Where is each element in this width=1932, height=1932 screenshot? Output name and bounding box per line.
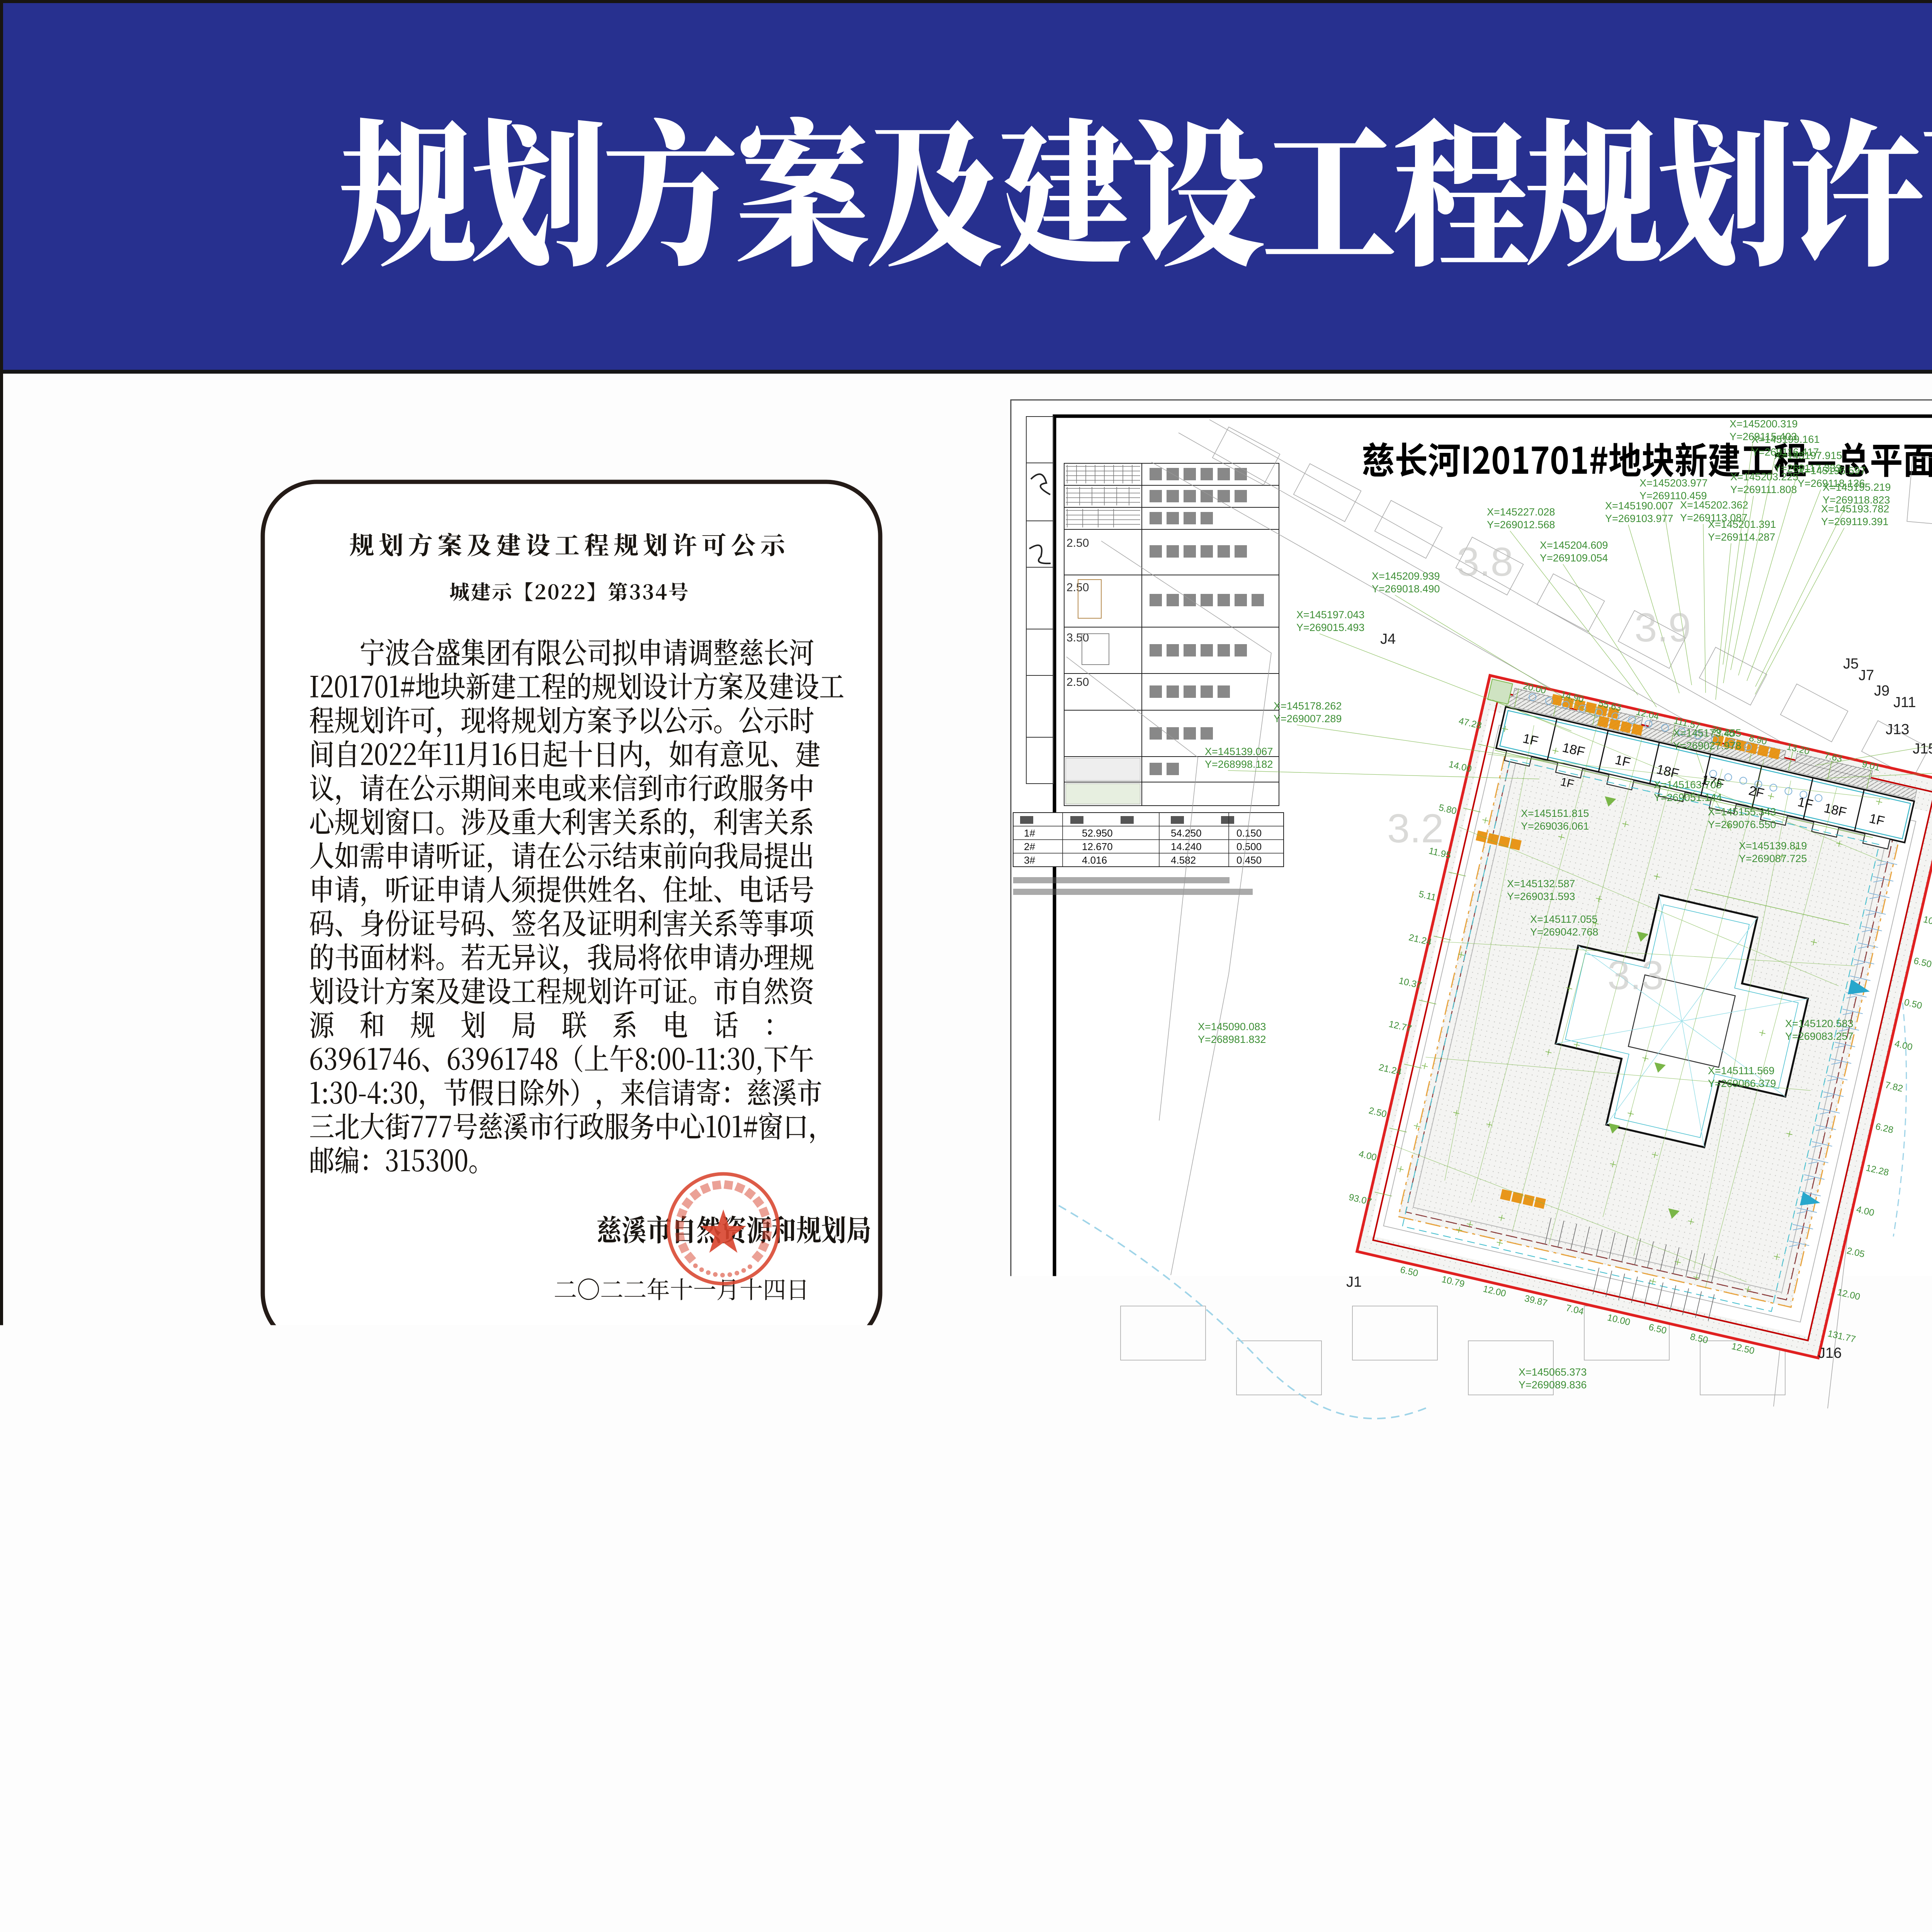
svg-text:1800: 1800 [1294,1548,1312,1556]
svg-text:Y=269089.836: Y=269089.836 [1519,1379,1587,1391]
svg-text:29: 29 [1626,1531,1633,1538]
svg-text:2: 2 [774,1531,778,1538]
svg-text:750: 750 [792,1795,805,1803]
svg-text:590: 590 [1101,1795,1114,1803]
svg-text:X=145151.815: X=145151.815 [1521,808,1589,819]
svg-text:X=145120.583: X=145120.583 [1785,1018,1853,1029]
svg-text:2.50: 2.50 [1066,537,1089,549]
svg-text:10: 10 [1026,1531,1034,1538]
svg-text:2500: 2500 [1024,1795,1041,1803]
svg-text:G-M5: G-M5 [1604,1737,1629,1749]
svg-text:4200: 4200 [1604,1795,1621,1803]
svg-text:1500: 1500 [1217,1548,1235,1556]
svg-text:2#: 2# [1024,841,1035,852]
svg-text:8: 8 [963,1531,967,1538]
svg-text:3: 3 [806,1531,809,1538]
svg-text:X=145173.455: X=145173.455 [1673,727,1741,739]
svg-text:4180: 4180 [1488,1548,1505,1556]
svg-text:3000: 3000 [908,1795,925,1803]
svg-text:3.50: 3.50 [1066,631,1089,644]
svg-text:0.150: 0.150 [1236,827,1262,839]
svg-text:3000: 3000 [1604,1548,1621,1556]
svg-text:15: 15 [1184,1531,1191,1538]
svg-text:1200: 1200 [1526,1795,1544,1803]
svg-text:Y=269066.379: Y=269066.379 [1708,1078,1776,1089]
svg-text:500: 500 [947,1548,959,1556]
svg-text:750: 750 [1719,1795,1732,1803]
svg-text:19: 19 [1310,1531,1318,1538]
svg-text:X=145193.782: X=145193.782 [1821,503,1889,515]
svg-text:1330: 1330 [1372,1795,1389,1803]
svg-text:3.9: 3.9 [1634,605,1691,650]
svg-text:4020: 4020 [1681,1548,1698,1556]
svg-text:25: 25 [1499,1531,1507,1538]
svg-text:16: 16 [1216,1531,1223,1538]
svg-text:54.250: 54.250 [1171,827,1202,839]
svg-text:4020: 4020 [753,1548,771,1556]
svg-text:590: 590 [1642,1548,1655,1556]
svg-text:Y=269076.550: Y=269076.550 [1708,819,1776,830]
svg-text:G-C3: G-C3 [1391,1737,1415,1749]
svg-text:X=145200.319: X=145200.319 [1730,418,1798,430]
svg-text:950: 950 [1526,1548,1539,1556]
svg-text:2700: 2700 [1758,1548,1776,1556]
svg-text:2700: 2700 [947,1795,964,1803]
svg-text:1500: 1500 [831,1795,848,1803]
svg-text:1000: 1000 [1565,1795,1582,1803]
svg-text:Y=269111.808: Y=269111.808 [1730,484,1797,495]
svg-text:J7: J7 [1859,667,1874,684]
svg-text:26: 26 [1531,1531,1538,1538]
svg-text:600: 600 [985,1795,998,1803]
svg-text:Y=269051.144: Y=269051.144 [1654,792,1722,803]
svg-text:G-C2: G-C2 [1484,1616,1508,1627]
svg-text:X=145117.055: X=145117.055 [1530,913,1597,925]
svg-text:0.450: 0.450 [1236,854,1262,866]
svg-text:3900: 3900 [1179,1795,1196,1803]
svg-text:14.240: 14.240 [1171,841,1202,852]
svg-text:30: 30 [1657,1531,1664,1538]
svg-text:X=145196.597: X=145196.597 [1798,465,1866,476]
svg-text:4180: 4180 [1256,1795,1273,1803]
svg-text:J9: J9 [1874,683,1889,699]
svg-text:2700: 2700 [831,1548,848,1556]
svg-text:X=145111.569: X=145111.569 [1708,1065,1774,1077]
svg-text:890: 890 [1565,1548,1578,1556]
svg-text:J13: J13 [1886,721,1909,738]
svg-text:770: 770 [1410,1795,1423,1803]
svg-text:Y=269119.391: Y=269119.391 [1821,516,1888,527]
svg-text:Y=269087.725: Y=269087.725 [1739,853,1807,864]
svg-text:1: 1 [743,1531,746,1538]
svg-text:5: 5 [869,1531,872,1538]
svg-text:Y=269031.593: Y=269031.593 [1507,891,1575,902]
svg-text:890: 890 [1642,1795,1655,1803]
svg-text:3000: 3000 [908,1548,925,1556]
svg-text:600: 600 [1063,1548,1075,1556]
svg-text:Y=269042.768: Y=269042.768 [1530,926,1598,938]
svg-text:4: 4 [837,1531,841,1538]
svg-text:Y=269015.493: Y=269015.493 [1296,622,1364,633]
svg-text:3000: 3000 [1140,1795,1157,1803]
svg-text:2.50: 2.50 [1066,676,1089,689]
svg-text:X=145090.083: X=145090.083 [1198,1021,1266,1032]
svg-text:2700: 2700 [869,1548,887,1556]
svg-text:Y=269109.054: Y=269109.054 [1540,552,1608,564]
svg-text:6: 6 [900,1531,904,1538]
svg-text:1330: 1330 [1140,1548,1157,1556]
svg-text:1#: 1# [1024,827,1035,839]
svg-text:X=145199.161: X=145199.161 [1752,434,1820,445]
svg-text:X=145203.977: X=145203.977 [1639,477,1708,489]
svg-text:4.016: 4.016 [1082,854,1107,866]
svg-text:X=145197.915: X=145197.915 [1774,450,1842,461]
svg-text:32: 32 [1720,1531,1728,1538]
svg-text:0.500: 0.500 [1236,841,1262,852]
svg-text:13: 13 [1121,1531,1128,1538]
svg-text:4.582: 4.582 [1171,854,1196,866]
svg-text:4200: 4200 [1372,1548,1389,1556]
svg-text:23: 23 [1436,1531,1444,1538]
svg-text:750: 750 [1024,1548,1037,1556]
svg-text:3.3: 3.3 [1607,953,1664,998]
svg-text:52.950: 52.950 [1082,827,1113,839]
svg-text:G-M5: G-M5 [1179,1737,1204,1749]
svg-text:21: 21 [1373,1531,1381,1538]
svg-text:G-M2: G-M2 [1275,1616,1300,1627]
svg-text:A233012676: A233012676 [1883,1568,1931,1578]
svg-text:12: 12 [1090,1531,1097,1538]
svg-text:X=145197.043: X=145197.043 [1296,609,1364,621]
svg-text:X=145227.028: X=145227.028 [1487,506,1555,518]
svg-text:18: 18 [1279,1531,1286,1538]
svg-text:Y=269103.977: Y=269103.977 [1605,513,1673,524]
svg-text:X=145204.609: X=145204.609 [1540,539,1608,551]
svg-text:X=145139.067: X=145139.067 [1205,746,1273,757]
svg-text:1000: 1000 [1179,1548,1196,1556]
svg-text:1800: 1800 [1217,1795,1235,1803]
svg-text:Y=269027.978: Y=269027.978 [1673,740,1741,752]
svg-text:3900: 3900 [1101,1548,1119,1556]
svg-text:24: 24 [1468,1531,1475,1538]
svg-text:1500: 1500 [1758,1795,1776,1803]
svg-text:34: 34 [1783,1531,1791,1538]
svg-text:3800: 3800 [1719,1548,1737,1556]
svg-text:1200: 1200 [985,1548,1003,1556]
svg-text:9: 9 [995,1531,998,1538]
svg-text:Y=269007.289: Y=269007.289 [1274,713,1342,724]
svg-text:22: 22 [1405,1531,1412,1538]
svg-text:500: 500 [1333,1795,1346,1803]
svg-text:X=145209.939: X=145209.939 [1372,570,1440,582]
svg-text:20: 20 [1342,1531,1349,1538]
svg-text:2500: 2500 [1256,1548,1273,1556]
svg-text:28: 28 [1594,1531,1601,1538]
svg-text:770: 770 [1333,1548,1346,1556]
svg-text:3800: 3800 [792,1548,810,1556]
svg-text:Y=269012.568: Y=269012.568 [1487,519,1555,531]
svg-text:12.670: 12.670 [1082,841,1113,852]
svg-text:J4: J4 [1380,631,1396,647]
svg-text:14: 14 [1153,1531,1160,1538]
svg-text:4180: 4180 [1063,1795,1080,1803]
svg-text:2200: 2200 [869,1795,887,1803]
svg-text:X=145195.219: X=145195.219 [1823,481,1891,493]
svg-text:27: 27 [1563,1531,1570,1538]
svg-text:G-M1: G-M1 [869,1616,895,1627]
svg-text:X=145163.709: X=145163.709 [1654,779,1722,791]
svg-text:3.8: 3.8 [1457,539,1513,585]
svg-text:X=145139.819: X=145139.819 [1739,840,1807,852]
svg-text:J1: J1 [1346,1274,1362,1290]
svg-text:11: 11 [1058,1531,1065,1538]
svg-text:2700: 2700 [1681,1795,1698,1803]
svg-text:J11: J11 [1893,694,1916,711]
svg-text:31: 31 [1689,1531,1696,1538]
svg-text:3800: 3800 [1488,1795,1505,1803]
svg-text:Y=268981.832: Y=268981.832 [1198,1034,1266,1045]
svg-text:Y=269083.257: Y=269083.257 [1785,1031,1853,1042]
svg-text:2200: 2200 [1410,1548,1428,1556]
svg-text:4020: 4020 [1294,1795,1312,1803]
svg-text:7: 7 [932,1531,935,1538]
svg-text:Y=269018.490: Y=269018.490 [1372,583,1440,595]
svg-text:Y=269114.287: Y=269114.287 [1708,531,1775,543]
svg-text:X=145065.373: X=145065.373 [1519,1366,1587,1378]
svg-text:X=145155.343: X=145155.343 [1708,806,1776,818]
svg-text:G-C1: G-C1 [1066,1616,1090,1627]
svg-text:33: 33 [1752,1531,1759,1538]
svg-text:Y=269036.061: Y=269036.061 [1521,820,1589,832]
svg-text:4180: 4180 [1449,1548,1466,1556]
svg-text:17: 17 [1247,1531,1255,1538]
svg-text:950: 950 [1449,1795,1462,1803]
svg-text:X=145178.262: X=145178.262 [1274,700,1342,712]
svg-text:Y=268998.182: Y=268998.182 [1205,759,1273,770]
svg-text:1:100: 1:100 [1291,1855,1320,1868]
svg-text:3#: 3# [1024,854,1035,866]
svg-text:J5: J5 [1843,656,1859,672]
svg-text:X=145203.225: X=145203.225 [1730,471,1798,483]
svg-text:J16: J16 [1818,1345,1842,1361]
svg-text:G-C2: G-C2 [966,1737,990,1749]
svg-text:2700: 2700 [753,1795,771,1803]
svg-text:X=145202.362: X=145202.362 [1680,499,1748,511]
svg-text:X=145132.587: X=145132.587 [1507,878,1575,889]
svg-text:3.2: 3.2 [1387,806,1444,851]
svg-text:J15: J15 [1913,741,1932,757]
